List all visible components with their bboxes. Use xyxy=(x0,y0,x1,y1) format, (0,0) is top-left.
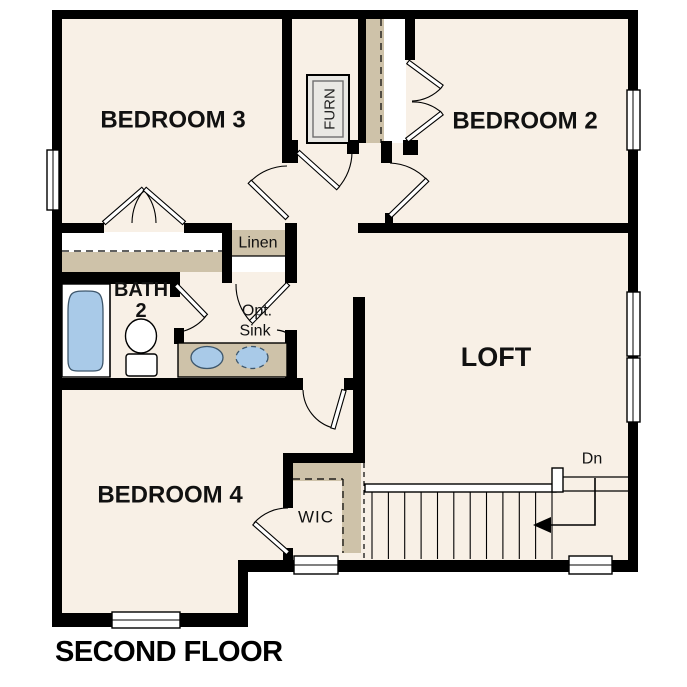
wall-closet-jamb-stub xyxy=(381,141,392,163)
optional-sink-basin xyxy=(236,347,268,369)
stair-railing xyxy=(365,484,556,492)
loft-label: LOFT xyxy=(461,342,532,372)
bathtub xyxy=(68,291,103,371)
stair-newel-post xyxy=(552,468,563,492)
wall-bedroom4-door-jamb xyxy=(344,378,358,390)
window-bedroom2-right xyxy=(627,90,640,150)
window-loft-right-lower xyxy=(627,358,640,422)
wall-bath-south xyxy=(52,378,303,390)
toilet-tank xyxy=(126,354,157,376)
stairs-down-label: Dn xyxy=(582,451,602,468)
exterior-wall-top xyxy=(52,10,638,19)
wall-bedroom2-closet-jamb-bottom xyxy=(403,140,418,155)
bath-label-line1: BATH xyxy=(114,279,168,301)
wall-bath-door-piece xyxy=(174,328,184,344)
window-loft-right-upper xyxy=(627,292,640,356)
window-bedroom3-left xyxy=(47,150,59,210)
bedroom3-label: BEDROOM 3 xyxy=(100,107,245,134)
wall-wic-north xyxy=(283,453,363,463)
sink-basin xyxy=(191,347,223,369)
bedroom2-label: BEDROOM 2 xyxy=(452,108,597,135)
wall-linen-east xyxy=(285,223,297,283)
opt-sink-label-line2: Sink xyxy=(239,323,271,340)
bedroom4-label: BEDROOM 4 xyxy=(97,482,243,509)
wall-bedroom3-east xyxy=(282,19,292,143)
bath-label-line2: 2 xyxy=(135,300,146,322)
wic-label: WIC xyxy=(298,508,334,527)
opt-sink-label-line1: Opt. xyxy=(242,303,272,320)
window-bedroom4-bottom xyxy=(112,612,180,628)
furnace-label: FURN xyxy=(322,88,339,130)
page-title: SECOND FLOOR xyxy=(55,636,283,668)
window-wic-bottom xyxy=(294,556,338,574)
wall-bedroom3-south-left xyxy=(52,223,104,233)
furnace-unit: FURN xyxy=(307,75,349,143)
window-stairs-bottom xyxy=(569,556,612,574)
wall-wic-west-upper xyxy=(283,463,293,508)
wall-furnace-closet-divider xyxy=(358,19,366,143)
linen-shelf-floor xyxy=(232,256,285,272)
floor-plan-page: FURN BEDROOM 3 BEDROOM 2 LOFT BEDROOM 4 … xyxy=(0,0,687,687)
bedroom2-closet-floor xyxy=(384,19,406,143)
toilet-bowl xyxy=(126,319,157,353)
exterior-wall-left xyxy=(52,10,62,627)
wall-loft-north xyxy=(358,223,638,233)
wall-linen-west xyxy=(222,223,232,283)
bedroom3-wardrobe xyxy=(62,252,222,272)
wall-hall-jamb xyxy=(282,140,298,163)
bedroom3-closet-floor xyxy=(62,232,222,252)
linen-label: Linen xyxy=(238,235,277,252)
wall-bedroom2-closet-jamb-top xyxy=(405,19,415,60)
floor-plan-drawing: FURN BEDROOM 3 BEDROOM 2 LOFT BEDROOM 4 … xyxy=(0,0,687,687)
